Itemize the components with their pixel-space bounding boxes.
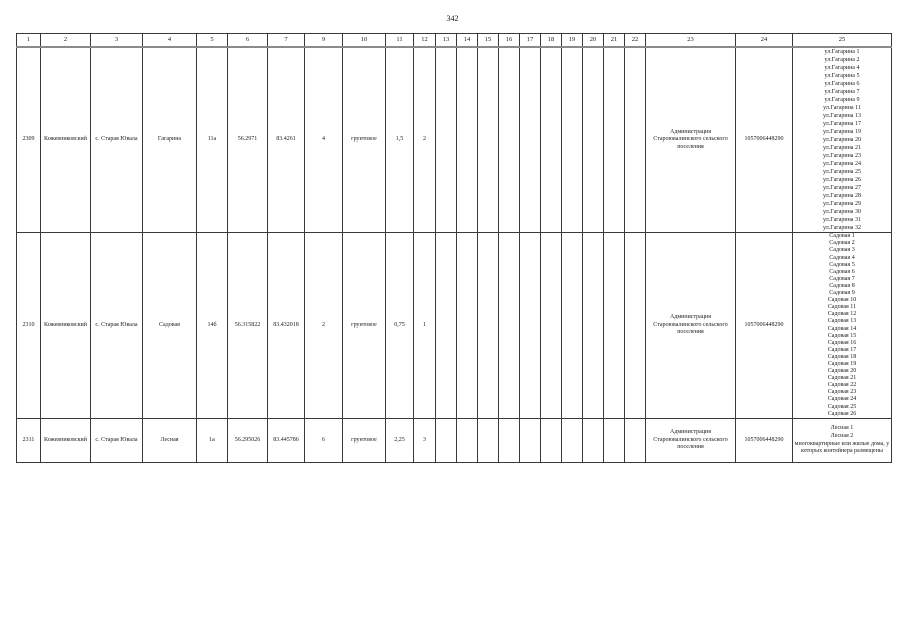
source-address: ул.Гагарина 5 xyxy=(794,72,890,80)
column-number-cell: 4 xyxy=(143,34,197,48)
column-number-cell: 9 xyxy=(305,34,343,48)
source-address: ул.Гагарина 25 xyxy=(794,168,890,176)
surface-cell: грунтовое xyxy=(343,233,386,419)
source-address: Садовая 9 xyxy=(794,290,890,297)
column-number-cell: 22 xyxy=(625,34,646,48)
owner-cell: Администрация Староювалинского сельского… xyxy=(646,233,736,419)
column-number-cell: 25 xyxy=(793,34,892,48)
column-number-cell: 7 xyxy=(268,34,305,48)
area-cell: 1,5 xyxy=(386,47,414,233)
source-address: ул.Гагарина 28 xyxy=(794,192,890,200)
house-cell: 14б xyxy=(197,233,228,419)
row-number-cell: 2310 xyxy=(17,233,41,419)
district-cell: Кожевниковский xyxy=(41,47,91,233)
column-number-cell: 10 xyxy=(343,34,386,48)
empty-cell xyxy=(436,233,457,419)
source-address: Садовая 20 xyxy=(794,368,890,375)
empty-cell xyxy=(625,233,646,419)
source-address: ул.Гагарина 13 xyxy=(794,112,890,120)
source-address: Садовая 14 xyxy=(794,326,890,333)
column-number-cell: 2 xyxy=(41,34,91,48)
empty-cell xyxy=(625,419,646,463)
source-address: ул.Гагарина 7 xyxy=(794,88,890,96)
source-address: ул.Гагарина 27 xyxy=(794,184,890,192)
source-address: Садовая 17 xyxy=(794,347,890,354)
empty-cell xyxy=(499,47,520,233)
latitude-cell: 56.2971 xyxy=(228,47,268,233)
sources-cell: ул.Гагарина 1ул.Гагарина 2ул.Гагарина 4у… xyxy=(793,47,892,233)
registry-table: 1234567910111213141516171819202122232425… xyxy=(16,33,892,463)
empty-cell xyxy=(478,47,499,233)
source-address: ул.Гагарина 6 xyxy=(794,80,890,88)
house-cell: 1а xyxy=(197,419,228,463)
row-number-cell: 2311 xyxy=(17,419,41,463)
empty-cell xyxy=(478,233,499,419)
surface-cell: грунтовое xyxy=(343,47,386,233)
latitude-cell: 56.295026 xyxy=(228,419,268,463)
source-address: ул.Гагарина 2 xyxy=(794,56,890,64)
source-address: Садовая 21 xyxy=(794,375,890,382)
source-address: ул.Гагарина 4 xyxy=(794,64,890,72)
empty-cell xyxy=(583,47,604,233)
owner-cell: Администрация Староювалинского сельского… xyxy=(646,419,736,463)
latitude-cell: 56.315822 xyxy=(228,233,268,419)
empty-cell xyxy=(436,419,457,463)
empty-cell xyxy=(625,47,646,233)
table-row: 2309 Кожевниковский с. Старая Ювала Гага… xyxy=(17,47,892,233)
source-address: ул.Гагарина 17 xyxy=(794,120,890,128)
source-address: Лесная 2 xyxy=(794,433,890,441)
column-number-cell: 19 xyxy=(562,34,583,48)
column-number-cell: 16 xyxy=(499,34,520,48)
source-address: ул.Гагарина 24 xyxy=(794,160,890,168)
source-address: Садовая 3 xyxy=(794,247,890,254)
sources-cell: Лесная 1Лесная 2многоквартирные или жилы… xyxy=(793,419,892,463)
source-address: ул.Гагарина 31 xyxy=(794,216,890,224)
source-address: Садовая 2 xyxy=(794,240,890,247)
source-address: ул.Гагарина 32 xyxy=(794,224,890,232)
column-number-cell: 15 xyxy=(478,34,499,48)
ogrn-cell: 1057006448290 xyxy=(736,233,793,419)
column-number-cell: 23 xyxy=(646,34,736,48)
source-address: Садовая 19 xyxy=(794,361,890,368)
column-number-cell: 24 xyxy=(736,34,793,48)
surface-cell: грунтовое xyxy=(343,419,386,463)
longitude-cell: 83.4261 xyxy=(268,47,305,233)
source-address: Садовая 5 xyxy=(794,262,890,269)
settlement-cell: с. Старая Ювала xyxy=(91,233,143,419)
empty-cell xyxy=(604,419,625,463)
source-address: Садовая 25 xyxy=(794,404,890,411)
source-address: ул.Гагарина 11 xyxy=(794,104,890,112)
source-address: Садовая 8 xyxy=(794,283,890,290)
settlement-cell: с. Старая Ювала xyxy=(91,419,143,463)
empty-cell xyxy=(520,419,541,463)
source-address: Садовая 11 xyxy=(794,304,890,311)
column-number-cell: 6 xyxy=(228,34,268,48)
source-address: Садовая 23 xyxy=(794,389,890,396)
empty-cell xyxy=(520,47,541,233)
empty-cell xyxy=(583,419,604,463)
source-address: ул.Гагарина 30 xyxy=(794,208,890,216)
source-address: Садовая 15 xyxy=(794,333,890,340)
source-address: Садовая 1 xyxy=(794,233,890,240)
page-number: 342 xyxy=(0,14,905,23)
empty-cell xyxy=(520,233,541,419)
empty-cell xyxy=(457,47,478,233)
empty-cell xyxy=(604,233,625,419)
street-cell: Лесная xyxy=(143,419,197,463)
empty-cell xyxy=(499,419,520,463)
column-number-cell: 12 xyxy=(414,34,436,48)
source-address: Лесная 1 xyxy=(794,425,890,433)
settlement-cell: с. Старая Ювала xyxy=(91,47,143,233)
table-row: 2311 Кожевниковский с. Старая Ювала Лесн… xyxy=(17,419,892,463)
source-address: ул.Гагарина 20 xyxy=(794,136,890,144)
containers-cell: 2 xyxy=(414,47,436,233)
source-address: ул.Гагарина 19 xyxy=(794,128,890,136)
source-address: Садовая 22 xyxy=(794,382,890,389)
row-number-cell: 2309 xyxy=(17,47,41,233)
source-address: Садовая 18 xyxy=(794,354,890,361)
column-number-cell: 11 xyxy=(386,34,414,48)
empty-cell xyxy=(541,47,562,233)
source-address: ул.Гагарина 29 xyxy=(794,200,890,208)
source-address: многоквартирные или жилые дома, у которы… xyxy=(794,441,890,457)
longitude-cell: 83.445786 xyxy=(268,419,305,463)
source-address: Садовая 10 xyxy=(794,297,890,304)
column-number-cell: 1 xyxy=(17,34,41,48)
source-address: ул.Гагарина 23 xyxy=(794,152,890,160)
source-address: Садовая 7 xyxy=(794,276,890,283)
containers-cell: 1 xyxy=(414,233,436,419)
area-cell: 2,25 xyxy=(386,419,414,463)
table-header-row: 1234567910111213141516171819202122232425 xyxy=(17,34,892,48)
ogrn-cell: 1057006448290 xyxy=(736,47,793,233)
sources-cell: Садовая 1Садовая 2Садовая 3Садовая 4Садо… xyxy=(793,233,892,419)
column-number-cell: 3 xyxy=(91,34,143,48)
source-address: ул.Гагарина 9 xyxy=(794,96,890,104)
empty-cell xyxy=(457,419,478,463)
column-number-cell: 20 xyxy=(583,34,604,48)
empty-cell xyxy=(562,233,583,419)
source-address: ул.Гагарина 1 xyxy=(794,48,890,56)
house-cell: 11а xyxy=(197,47,228,233)
empty-cell xyxy=(604,47,625,233)
source-address: Садовая 13 xyxy=(794,318,890,325)
quantity-cell: 6 xyxy=(305,419,343,463)
column-number-cell: 13 xyxy=(436,34,457,48)
longitude-cell: 83.432018 xyxy=(268,233,305,419)
empty-cell xyxy=(541,419,562,463)
column-number-cell: 18 xyxy=(541,34,562,48)
source-address: Садовая 26 xyxy=(794,411,890,418)
empty-cell xyxy=(478,419,499,463)
column-number-cell: 21 xyxy=(604,34,625,48)
empty-cell xyxy=(583,233,604,419)
empty-cell xyxy=(541,233,562,419)
district-cell: Кожевниковский xyxy=(41,419,91,463)
empty-cell xyxy=(436,47,457,233)
empty-cell xyxy=(562,419,583,463)
empty-cell xyxy=(499,233,520,419)
empty-cell xyxy=(562,47,583,233)
street-cell: Садовая xyxy=(143,233,197,419)
column-number-cell: 14 xyxy=(457,34,478,48)
quantity-cell: 4 xyxy=(305,47,343,233)
containers-cell: 3 xyxy=(414,419,436,463)
source-address: Садовая 24 xyxy=(794,396,890,403)
source-address: Садовая 16 xyxy=(794,340,890,347)
empty-cell xyxy=(457,233,478,419)
source-address: Садовая 4 xyxy=(794,255,890,262)
quantity-cell: 2 xyxy=(305,233,343,419)
area-cell: 0,75 xyxy=(386,233,414,419)
ogrn-cell: 1057006448290 xyxy=(736,419,793,463)
owner-cell: Администрация Староювалинского сельского… xyxy=(646,47,736,233)
source-address: ул.Гагарина 26 xyxy=(794,176,890,184)
source-address: Садовая 6 xyxy=(794,269,890,276)
source-address: Садовая 12 xyxy=(794,311,890,318)
street-cell: Гагарина xyxy=(143,47,197,233)
source-address: ул.Гагарина 21 xyxy=(794,144,890,152)
table-row: 2310 Кожевниковский с. Старая Ювала Садо… xyxy=(17,233,892,419)
column-number-cell: 5 xyxy=(197,34,228,48)
column-number-cell: 17 xyxy=(520,34,541,48)
district-cell: Кожевниковский xyxy=(41,233,91,419)
